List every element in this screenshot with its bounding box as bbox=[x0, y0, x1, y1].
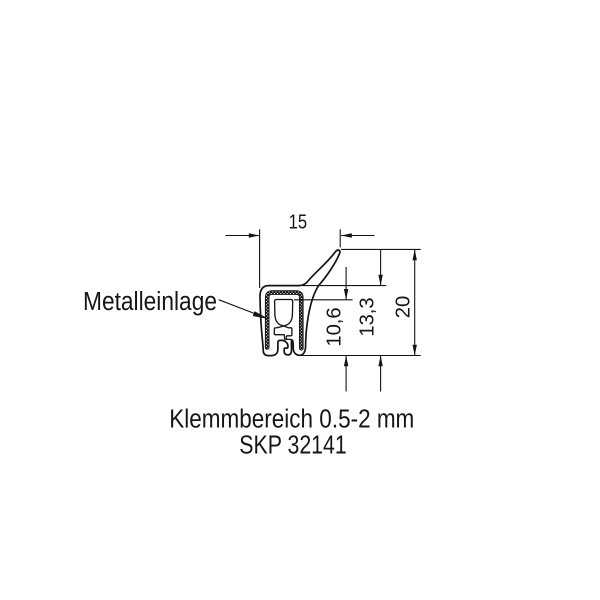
svg-text:Klemmbereich 0.5-2 mm: Klemmbereich 0.5-2 mm bbox=[169, 405, 414, 433]
svg-text:20: 20 bbox=[392, 296, 414, 318]
svg-text:15: 15 bbox=[289, 212, 308, 234]
svg-text:10,6: 10,6 bbox=[324, 307, 346, 346]
svg-text:SKP 32141: SKP 32141 bbox=[239, 432, 347, 460]
svg-text:Metalleinlage: Metalleinlage bbox=[83, 288, 217, 316]
svg-text:13,3: 13,3 bbox=[357, 297, 379, 336]
